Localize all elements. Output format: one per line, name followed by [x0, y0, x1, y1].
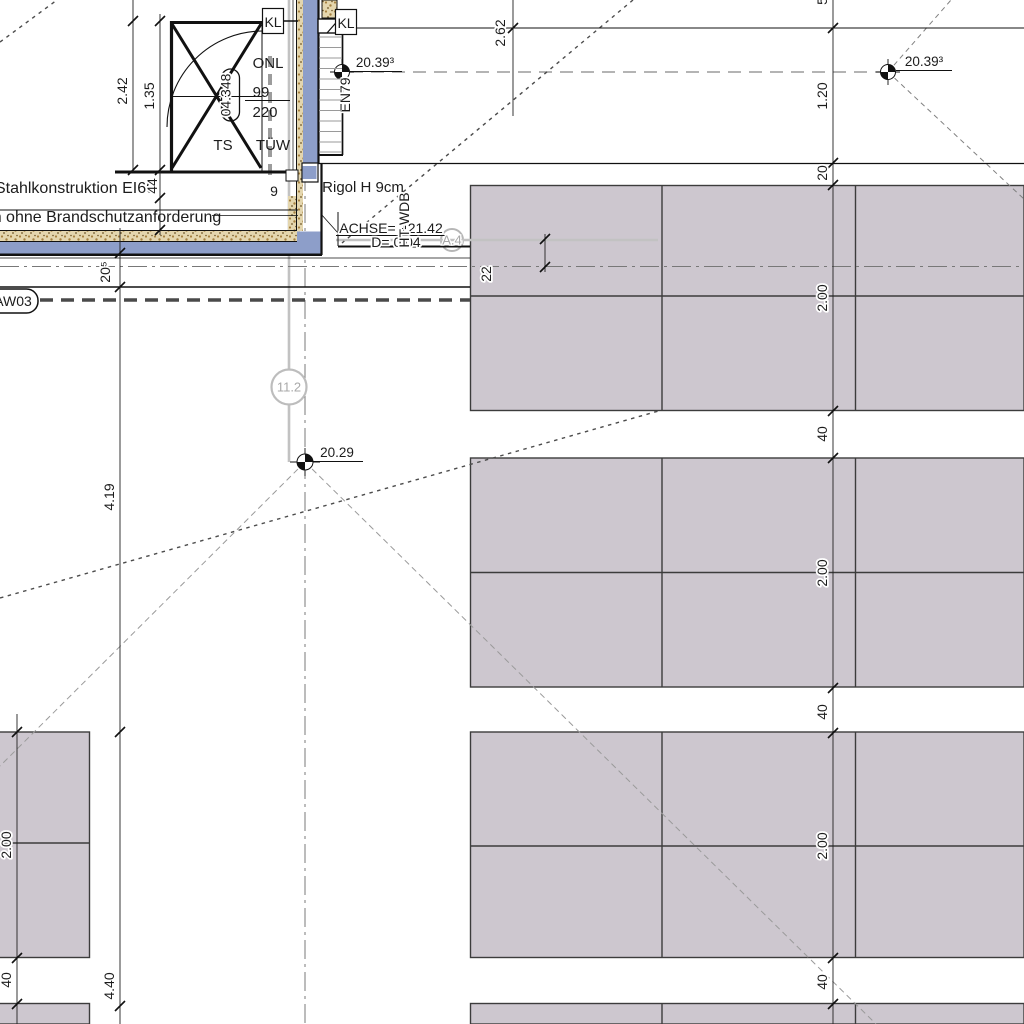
label-axis-a4: A.4	[442, 233, 462, 248]
dim-1-35: 1.35	[141, 82, 157, 109]
label-door-height: 220	[252, 104, 277, 121]
dim-4-19: 4.19	[101, 483, 117, 510]
dim-4-40: 4.40	[101, 972, 117, 999]
insulation-band-horizontal	[0, 231, 297, 242]
dim-2-00-r1: 2.00	[814, 284, 830, 311]
label-aw03: AW03	[0, 293, 32, 309]
label-tuw: TÜW	[256, 136, 291, 154]
label-ts: TS	[213, 137, 232, 154]
dim-2-00-r3: 2.00	[814, 832, 830, 859]
concrete-wall-horizontal	[0, 242, 298, 255]
insulation-jamb	[288, 196, 300, 232]
label-brandschutz: n ohne Brandschutzanforderung	[0, 209, 221, 226]
label-stahlkonstruktion: Stahlkonstruktion EI60	[0, 180, 155, 197]
label-en79: EN79	[337, 77, 353, 112]
label-rigol: Rigol H 9cm	[322, 179, 404, 196]
label-onl: ONL	[253, 55, 284, 72]
label-axis-11-2: 11.2	[277, 380, 301, 395]
label-kl-left: KL	[264, 14, 281, 30]
dim-44: 44	[144, 178, 160, 194]
dim-9: 9	[270, 183, 278, 199]
dim-2-00-r2: 2.00	[814, 559, 830, 586]
label-level-grid: 20.39³	[905, 54, 944, 69]
panel-grid	[0, 186, 1024, 1024]
dim-1-20: 1.20	[814, 82, 830, 109]
concrete-wall-vertical	[303, 0, 318, 163]
floor-plan-drawing: Stahlkonstruktion EI60 n ohne Brandschut…	[0, 0, 1024, 1024]
label-kl-right: KL	[337, 15, 354, 31]
dim-40-r1: 40	[814, 426, 830, 442]
label-level-stair: 20.39³	[356, 55, 395, 70]
door-frame-block	[286, 170, 298, 181]
survey-ray-mid-left	[0, 462, 305, 766]
label-level-mid: 20.29	[320, 445, 354, 460]
dim-2-62: 2.62	[492, 19, 508, 46]
dim-40-r2: 40	[814, 704, 830, 720]
dim-40-left: 40	[0, 972, 14, 988]
dim-2-42: 2.42	[114, 77, 130, 104]
concrete-wall-corner	[297, 232, 322, 255]
label-ht-wdb: HT-WDB	[396, 192, 412, 247]
panel-block	[471, 186, 1024, 411]
dim-22: 22	[478, 266, 494, 282]
dim-partial-top: 5	[814, 0, 830, 5]
dim-20: 20	[814, 165, 830, 181]
survey-ray-right-down	[888, 72, 1024, 199]
sight-line-dotted-corner	[0, 0, 57, 42]
panel-block	[471, 1004, 1024, 1024]
dim-20-5: 20⁵	[97, 261, 113, 282]
label-door-width: 99	[253, 84, 270, 101]
dim-40-r3: 40	[814, 974, 830, 990]
label-room-number: 04.348	[218, 73, 234, 116]
insulation-stair-top	[322, 0, 337, 18]
panel-block	[471, 732, 1024, 958]
dim-2-00-left: 2.00	[0, 831, 14, 858]
